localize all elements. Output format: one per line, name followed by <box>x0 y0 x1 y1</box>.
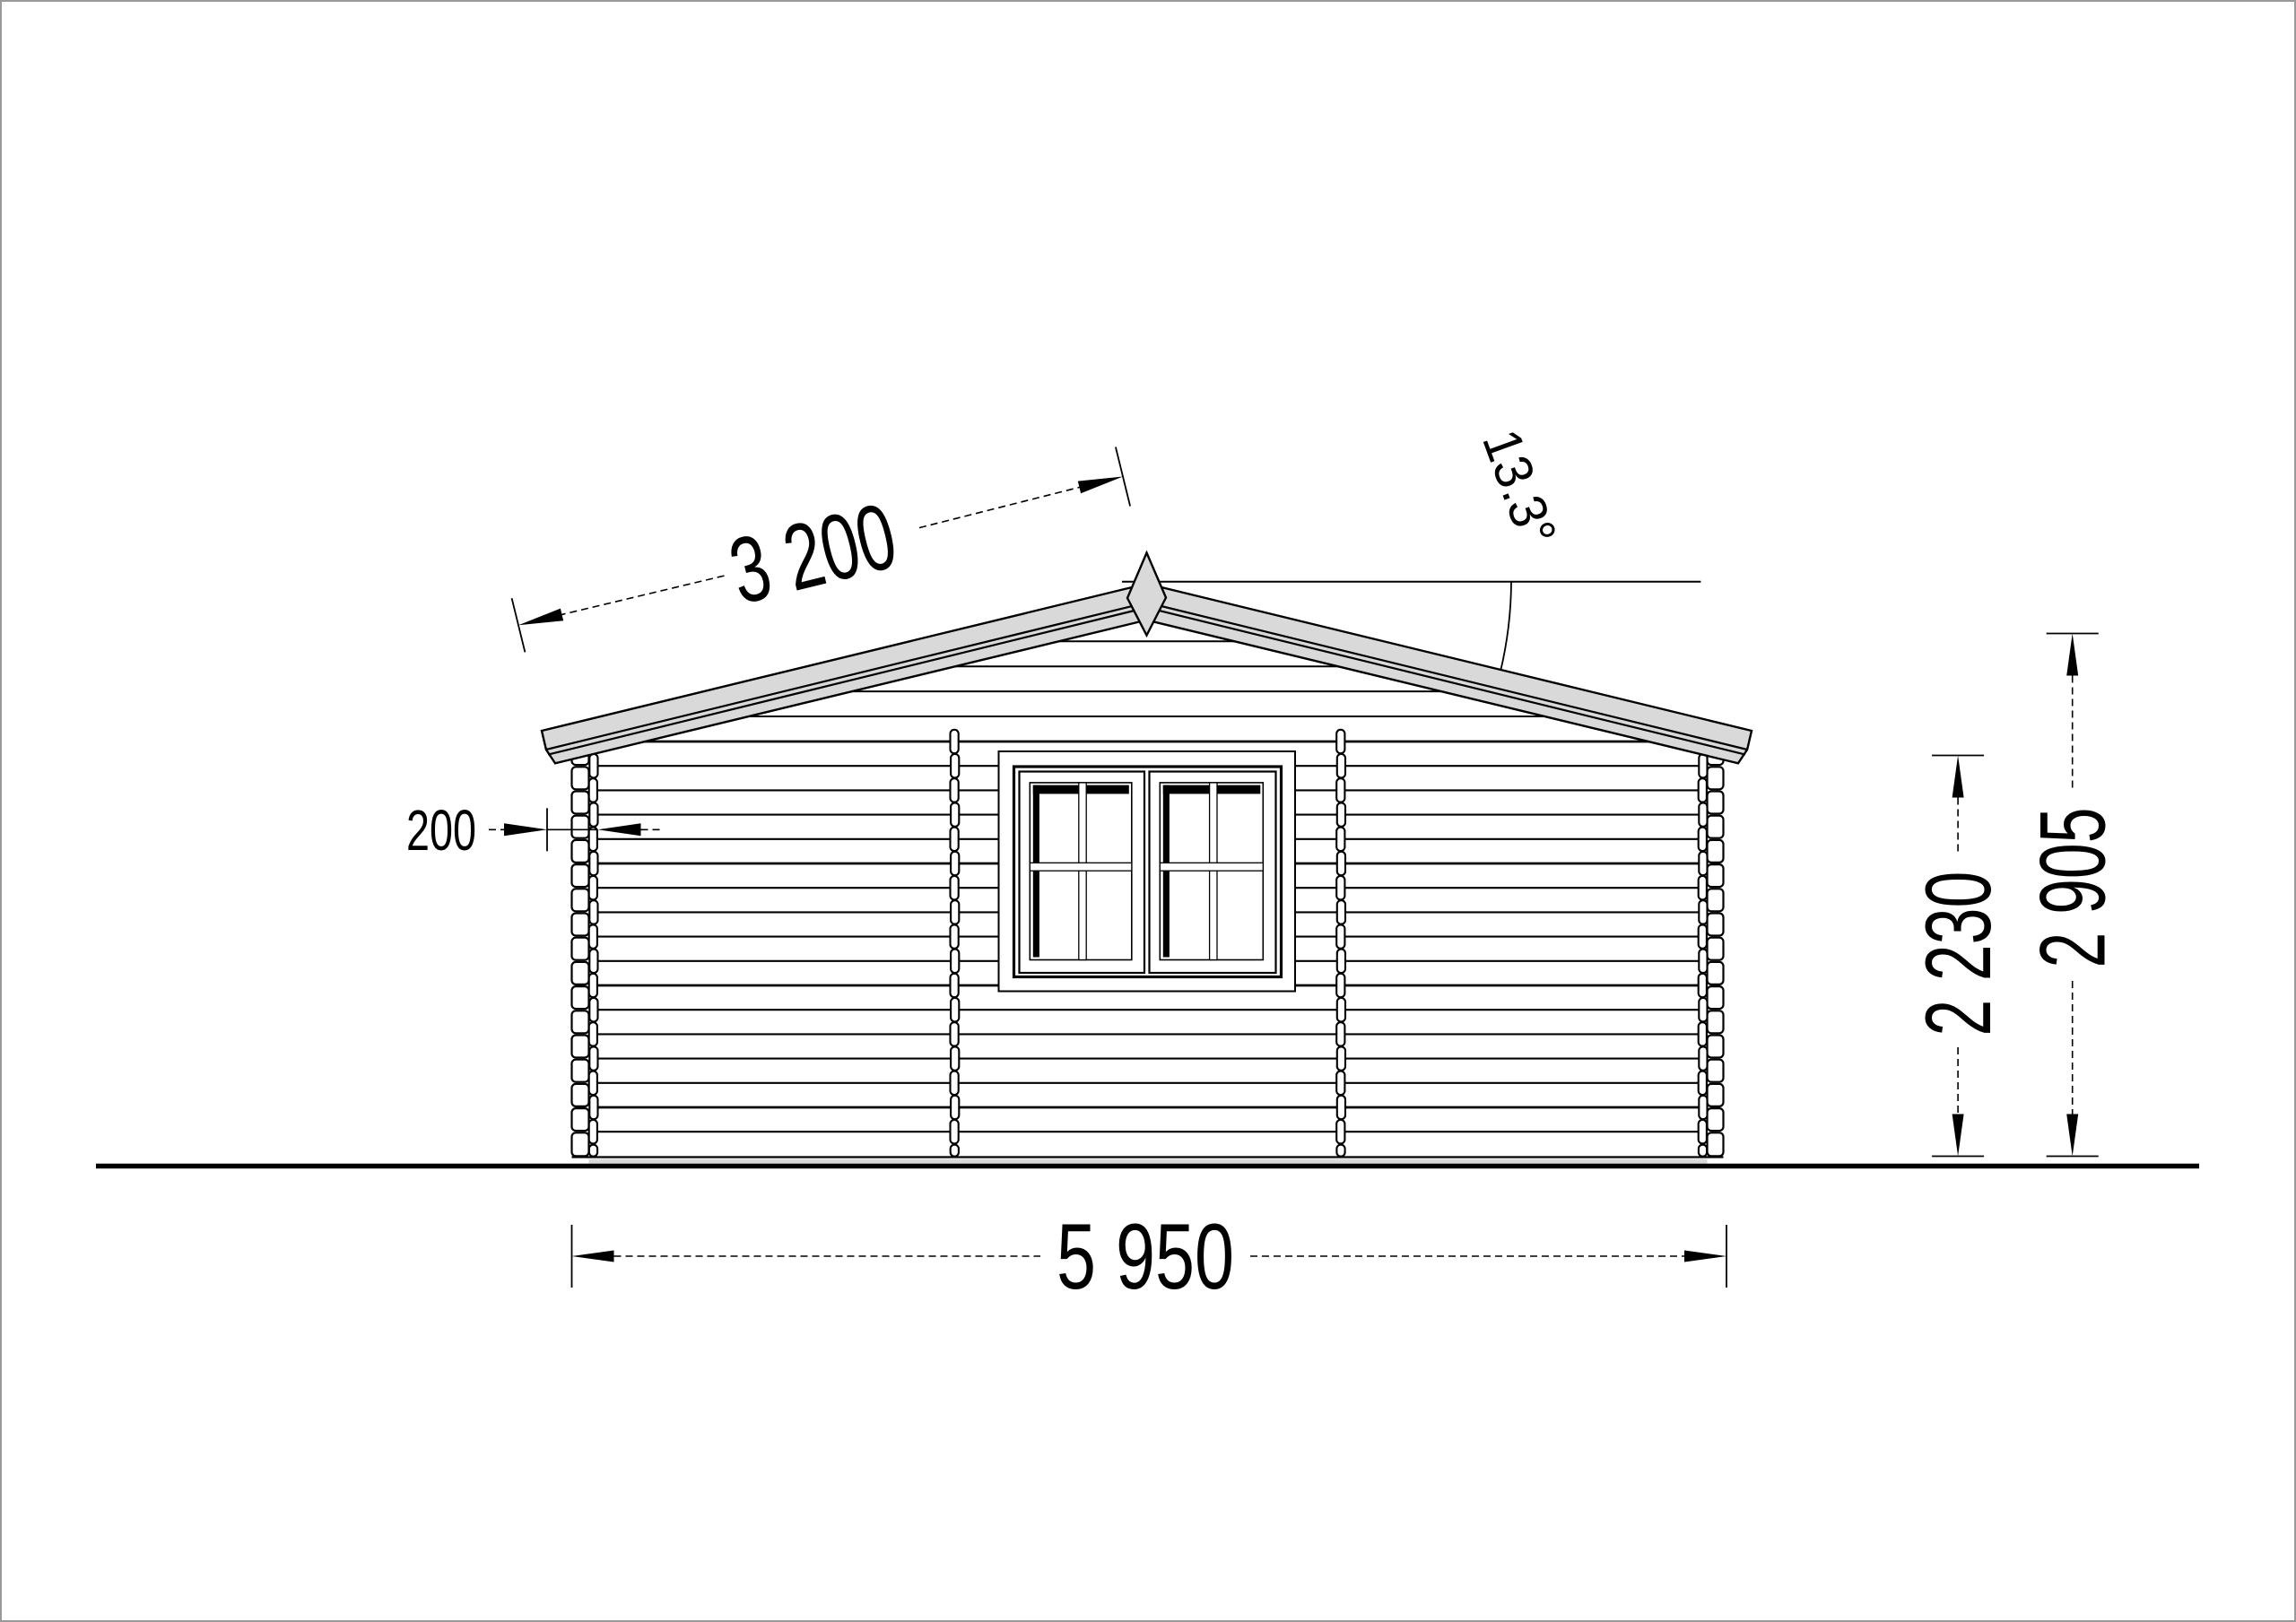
svg-text:200: 200 <box>406 798 476 863</box>
svg-text:13.3°: 13.3° <box>1471 422 1568 554</box>
svg-text:2 230: 2 230 <box>1907 872 2011 1037</box>
svg-text:5 950: 5 950 <box>1057 1205 1234 1309</box>
svg-text:3 200: 3 200 <box>720 484 906 625</box>
svg-text:2 905: 2 905 <box>2022 808 2126 968</box>
